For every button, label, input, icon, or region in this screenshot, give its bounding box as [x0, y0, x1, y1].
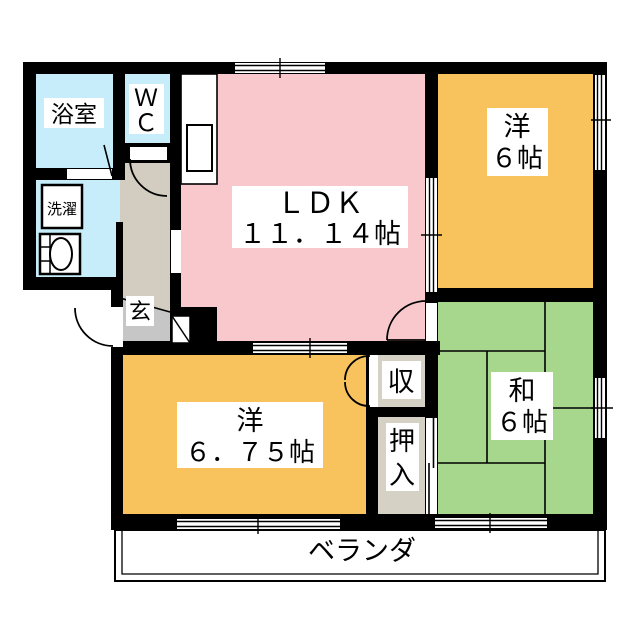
- western6-label: 洋: [504, 112, 531, 142]
- japanese6-label: 和: [509, 376, 536, 406]
- western6-size-label: ６帖: [491, 143, 543, 173]
- closet-label-line1: 押: [389, 426, 415, 456]
- hallway: [120, 163, 170, 312]
- genkan-label: 玄: [129, 299, 151, 324]
- wc-label-line2: Ｃ: [134, 110, 158, 137]
- shoe-cabinet: [172, 316, 190, 343]
- wc-label-line1: Ｗ: [134, 85, 158, 112]
- kitchen-sink: [187, 125, 212, 171]
- japanese6-size-label: ６帖: [496, 407, 548, 437]
- bath-label: 浴室: [51, 101, 97, 127]
- washbasin: [40, 234, 80, 274]
- ldk-size-label: １１．１４帖: [239, 219, 401, 249]
- floorplan-page: 浴室 Ｗ Ｃ 洗濯 ＬＤＫ １１．１４帖 洋 ６帖 和 ６帖 洋 ６．７５帖 収…: [0, 0, 640, 640]
- western675-size-label: ６．７５帖: [185, 437, 315, 467]
- veranda-label: ベランダ: [308, 536, 416, 566]
- room-western-6: [438, 74, 593, 288]
- closet-label-line2: 入: [389, 460, 415, 490]
- ldk-label: ＬＤＫ: [276, 188, 363, 220]
- western675-label: 洋: [237, 406, 264, 436]
- floorplan-canvas: 浴室 Ｗ Ｃ 洗濯 ＬＤＫ １１．１４帖 洋 ６帖 和 ６帖 洋 ６．７５帖 収…: [0, 0, 640, 640]
- kitchen-counter: [181, 74, 217, 184]
- storage-label: 収: [388, 367, 415, 397]
- laundry-label: 洗濯: [47, 201, 77, 218]
- fusuma-closet: [426, 418, 437, 514]
